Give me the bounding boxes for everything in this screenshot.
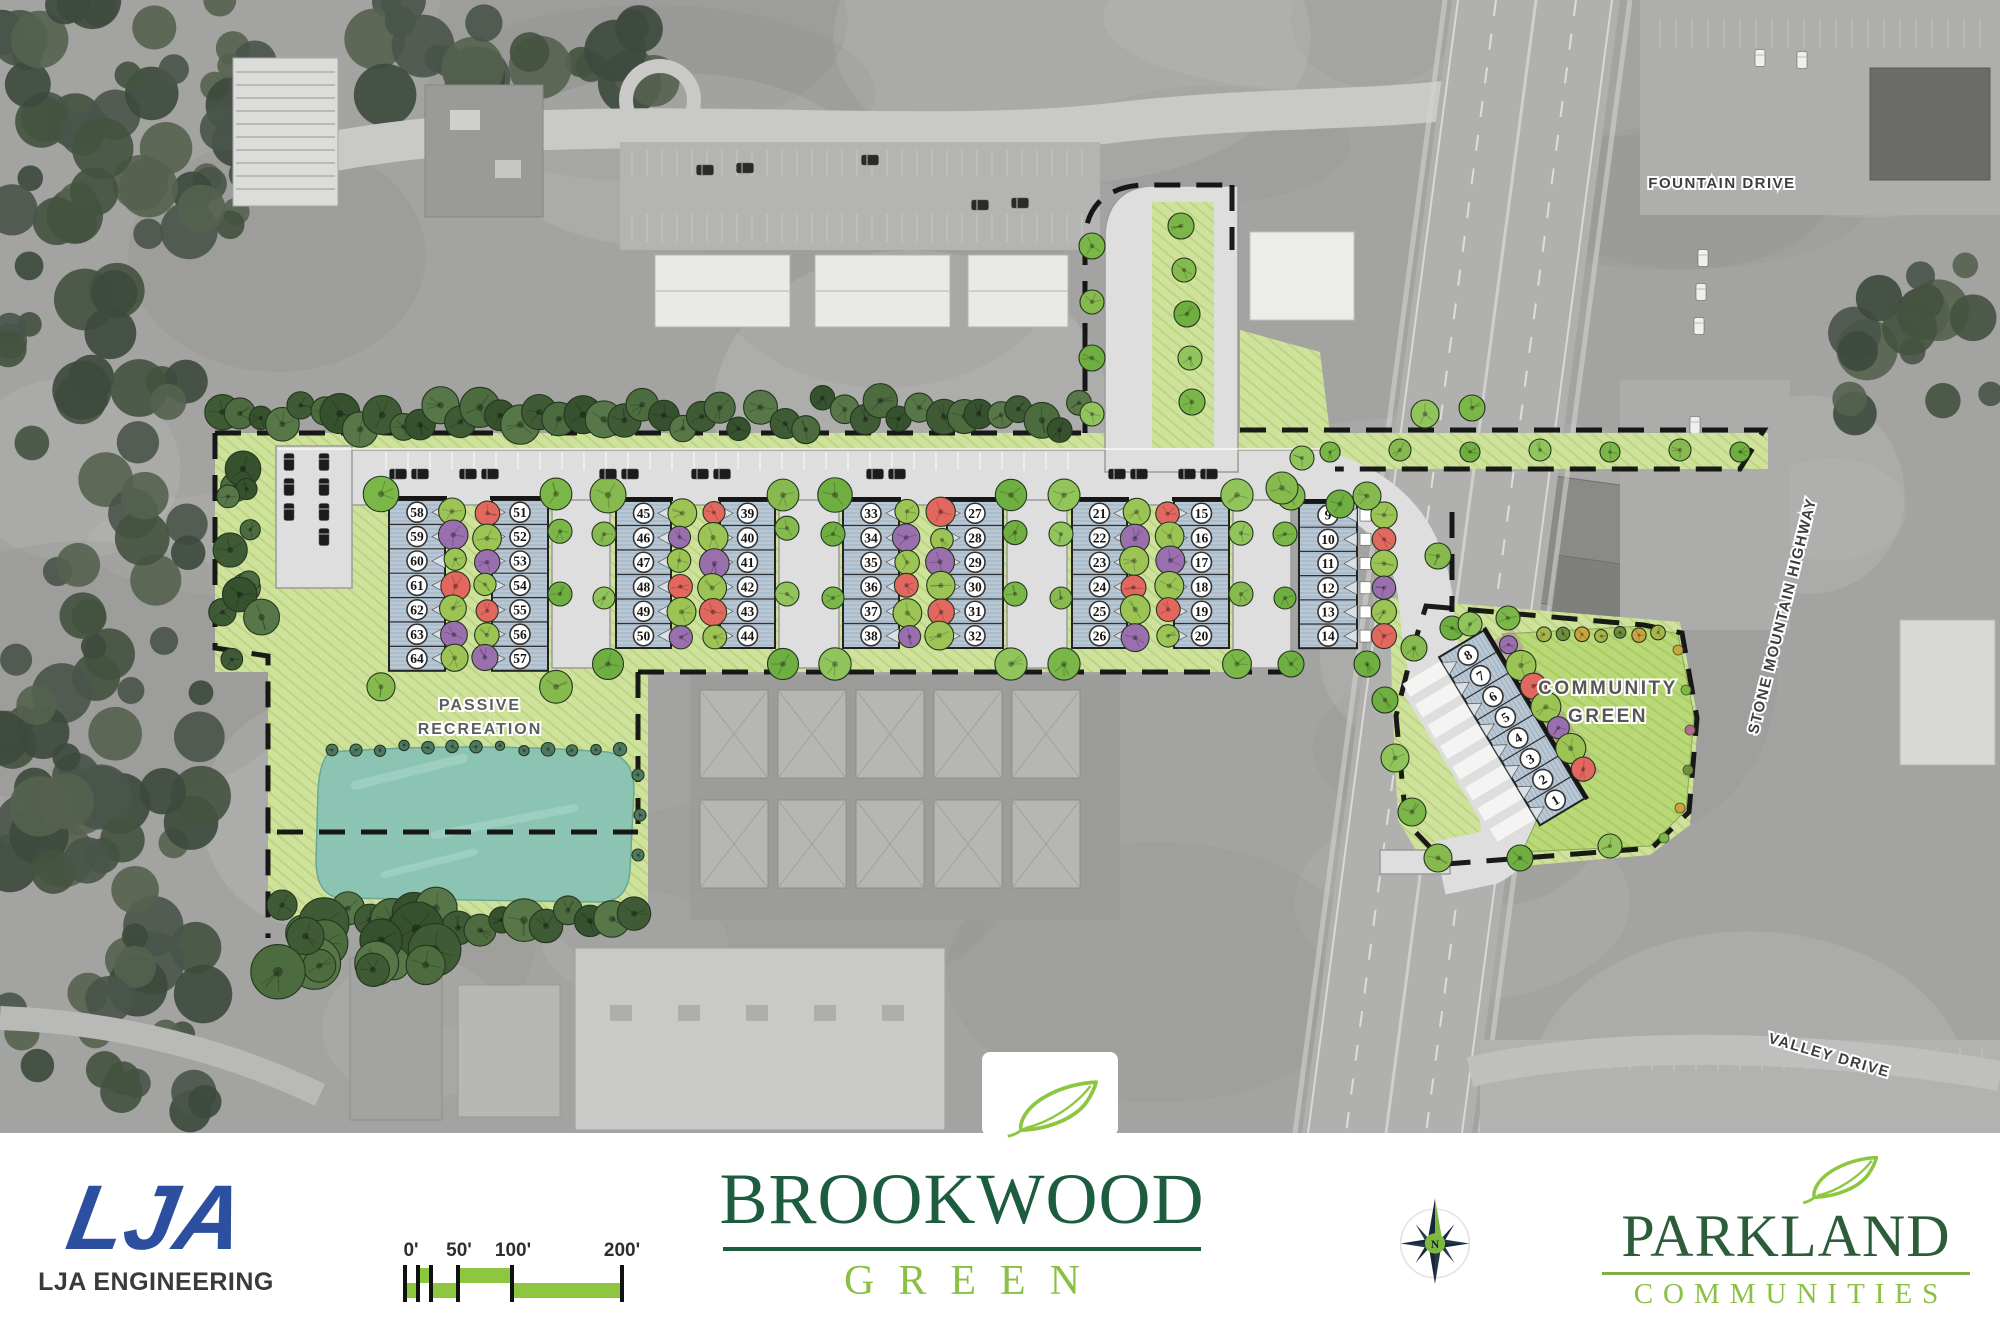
tree-icon	[217, 485, 240, 508]
svg-text:21: 21	[1093, 506, 1107, 521]
lot-44: 44	[738, 626, 758, 646]
parkland-divider	[1602, 1272, 1970, 1275]
tree-icon	[704, 392, 735, 423]
tree-icon	[1048, 479, 1080, 511]
tree-icon	[326, 744, 338, 756]
tree-icon	[1600, 442, 1620, 462]
tree-icon	[476, 600, 498, 622]
car-icon	[284, 454, 294, 471]
community-green-label-line2: GREEN	[1568, 706, 1648, 727]
lot-32: 32	[965, 626, 985, 646]
car-icon	[1797, 52, 1807, 69]
tree-icon	[667, 597, 696, 626]
svg-text:63: 63	[410, 627, 424, 642]
tree-icon	[593, 587, 615, 609]
lja-engineering-logo: LJA LJA ENGINEERING	[36, 1172, 276, 1297]
car-icon	[737, 163, 754, 173]
tree-icon	[1389, 439, 1411, 461]
car-icon	[319, 479, 329, 496]
tree-icon	[1048, 648, 1080, 680]
lot-58: 58	[407, 502, 427, 522]
fountain-drive-label: FOUNTAIN DRIVE	[1648, 175, 1795, 192]
svg-text:24: 24	[1093, 579, 1107, 594]
tree-icon	[1003, 582, 1027, 606]
tree-icon	[894, 573, 918, 597]
tree-icon	[1168, 213, 1194, 239]
car-icon	[482, 469, 499, 479]
tree-icon	[1575, 627, 1590, 642]
tree-icon	[727, 417, 750, 440]
scale-bar: 0' 50' 100' 200'	[405, 1240, 655, 1302]
tree-icon	[821, 522, 845, 546]
lot-59: 59	[407, 527, 427, 547]
tree-icon	[1632, 628, 1646, 642]
lot-60: 60	[407, 551, 427, 571]
scale-bar-graphic	[405, 1268, 655, 1302]
tree-icon	[1278, 651, 1304, 677]
tree-icon	[1003, 521, 1027, 545]
car-icon	[412, 469, 429, 479]
tree-icon	[1156, 598, 1180, 622]
tree-icon	[1354, 651, 1380, 677]
tree-icon	[1229, 582, 1253, 606]
car-icon	[889, 469, 906, 479]
tree-icon	[767, 648, 798, 679]
tree-icon	[1595, 630, 1608, 643]
tree-icon	[1651, 625, 1666, 640]
car-icon	[1755, 50, 1765, 67]
parkland-subtitle: COMMUNITIES	[1586, 1280, 1986, 1309]
svg-text:30: 30	[968, 579, 982, 594]
svg-text:15: 15	[1195, 506, 1209, 521]
passive-recreation-label: PASSIVE	[439, 697, 521, 714]
svg-text:17: 17	[1195, 555, 1209, 570]
svg-text:36: 36	[864, 579, 878, 594]
tree-icon	[1290, 446, 1314, 470]
tree-icon	[1401, 635, 1427, 661]
lot-56: 56	[510, 624, 530, 644]
tree-icon	[1223, 650, 1252, 679]
lot-16: 16	[1192, 528, 1212, 548]
tree-icon	[634, 809, 646, 821]
svg-text:56: 56	[513, 627, 527, 642]
svg-text:33: 33	[864, 506, 878, 521]
tree-icon	[1172, 258, 1196, 282]
lot-47: 47	[634, 552, 654, 572]
tree-icon	[1372, 624, 1397, 649]
svg-text:31: 31	[968, 604, 982, 619]
tree-icon	[775, 516, 799, 540]
tree-icon	[406, 945, 445, 984]
parkland-title: PARKLAND	[1586, 1206, 1986, 1266]
tree-icon	[613, 743, 626, 756]
svg-text:61: 61	[410, 578, 424, 593]
tree-icon	[1320, 442, 1340, 462]
svg-text:55: 55	[513, 602, 527, 617]
car-icon	[692, 469, 709, 479]
tree-icon	[1424, 844, 1452, 872]
lot-17: 17	[1192, 552, 1212, 572]
tree-icon	[1411, 400, 1439, 428]
tree-icon	[925, 621, 954, 650]
tree-icon	[1079, 345, 1105, 371]
tree-icon	[668, 575, 692, 599]
svg-text:18: 18	[1195, 579, 1209, 594]
leaf-icon	[1004, 1058, 1098, 1158]
tree-icon	[632, 849, 644, 861]
tree-icon	[1120, 546, 1149, 575]
lot-14: 14	[1318, 626, 1338, 646]
svg-text:35: 35	[864, 555, 878, 570]
lot-51: 51	[510, 502, 530, 522]
lot-18: 18	[1192, 577, 1212, 597]
tree-icon	[1537, 627, 1552, 642]
lot-41: 41	[738, 552, 758, 572]
car-icon	[1690, 417, 1700, 434]
svg-text:34: 34	[864, 530, 878, 545]
tree-icon	[1507, 845, 1533, 871]
svg-text:38: 38	[864, 628, 878, 643]
tree-icon	[540, 478, 572, 510]
tree-icon	[895, 499, 919, 523]
compass-rose-icon: N	[1396, 1178, 1474, 1312]
tree-icon	[287, 392, 314, 419]
tree-icon	[367, 673, 395, 701]
tree-icon	[669, 626, 692, 649]
tree-icon	[1155, 571, 1184, 600]
brookwood-title: BROOKWOOD	[712, 1163, 1212, 1235]
lot-27: 27	[965, 503, 985, 523]
tree-icon	[541, 742, 555, 756]
tree-icon	[1598, 834, 1622, 858]
car-icon	[714, 469, 731, 479]
lot-19: 19	[1192, 601, 1212, 621]
lot-45: 45	[634, 503, 654, 523]
svg-text:64: 64	[410, 651, 424, 666]
tree-icon	[927, 571, 955, 599]
lot-54: 54	[510, 575, 530, 595]
car-icon	[622, 469, 639, 479]
lot-52: 52	[510, 527, 530, 547]
tree-icon	[1614, 626, 1626, 638]
lot-31: 31	[965, 601, 985, 621]
tree-icon	[1459, 395, 1485, 421]
lot-39: 39	[738, 503, 758, 523]
svg-text:40: 40	[741, 530, 755, 545]
svg-text:23: 23	[1093, 555, 1107, 570]
tree-icon	[1398, 798, 1426, 826]
tree-icon	[566, 745, 577, 756]
tree-icon	[1458, 612, 1482, 636]
svg-text:60: 60	[410, 554, 424, 569]
tree-icon	[548, 519, 572, 543]
lot-53: 53	[510, 551, 530, 571]
svg-text:53: 53	[513, 554, 527, 569]
scale-bar-labels: 0' 50' 100' 200'	[405, 1240, 655, 1262]
car-icon	[460, 469, 477, 479]
car-icon	[1696, 284, 1706, 301]
svg-text:39: 39	[741, 506, 755, 521]
svg-text:37: 37	[864, 604, 878, 619]
svg-text:51: 51	[513, 505, 527, 520]
car-icon	[1698, 250, 1708, 267]
lja-company-name: LJA ENGINEERING	[36, 1268, 276, 1297]
townhome-building: 454647484950	[614, 497, 673, 648]
car-icon	[390, 469, 407, 479]
svg-text:26: 26	[1093, 628, 1107, 643]
lot-12: 12	[1318, 578, 1338, 598]
car-icon	[1131, 469, 1148, 479]
svg-text:48: 48	[637, 579, 651, 594]
tree-icon	[668, 526, 690, 548]
car-icon	[862, 155, 879, 165]
tree-icon	[1730, 442, 1750, 462]
scale-label-0: 0'	[403, 1240, 418, 1262]
lot-13: 13	[1318, 602, 1338, 622]
svg-text:32: 32	[968, 628, 982, 643]
lot-35: 35	[861, 552, 881, 572]
tree-icon	[1266, 472, 1298, 504]
tree-icon	[822, 587, 844, 609]
tree-icon	[267, 890, 297, 920]
tree-icon	[667, 549, 690, 572]
svg-text:25: 25	[1093, 604, 1107, 619]
tree-icon	[444, 548, 466, 570]
tree-icon	[1079, 233, 1105, 259]
car-icon	[319, 454, 329, 471]
car-icon	[284, 504, 294, 521]
tree-icon	[767, 479, 799, 511]
car-icon	[972, 200, 989, 210]
car-icon	[1201, 469, 1218, 479]
lot-34: 34	[861, 528, 881, 548]
brookwood-green-logo: BROOKWOOD GREEN	[712, 1075, 1212, 1302]
svg-text:14: 14	[1321, 629, 1335, 644]
svg-text:19: 19	[1195, 604, 1209, 619]
lot-48: 48	[634, 577, 654, 597]
tree-icon	[1080, 290, 1104, 314]
svg-text:13: 13	[1321, 605, 1335, 620]
lot-61: 61	[407, 575, 427, 595]
community-green-label: COMMUNITY	[1538, 678, 1678, 699]
car-icon	[1012, 198, 1029, 208]
svg-text:46: 46	[637, 530, 651, 545]
tree-icon	[792, 416, 820, 444]
tree-icon	[221, 648, 243, 670]
lot-15: 15	[1192, 503, 1212, 523]
tree-icon	[818, 478, 852, 512]
tree-icon	[926, 497, 955, 526]
tree-icon	[899, 626, 921, 648]
tree-icon	[1371, 550, 1398, 577]
tree-icon	[1372, 576, 1395, 599]
svg-text:16: 16	[1195, 530, 1209, 545]
lot-10: 10	[1318, 529, 1338, 549]
car-icon	[867, 469, 884, 479]
svg-text:57: 57	[513, 651, 527, 666]
tree-icon	[1425, 543, 1451, 569]
svg-text:45: 45	[637, 506, 651, 521]
compass-north-label: N	[1431, 1238, 1440, 1251]
svg-text:44: 44	[741, 628, 755, 643]
lot-23: 23	[1090, 552, 1110, 572]
svg-text:42: 42	[741, 579, 755, 594]
tree-icon	[548, 582, 572, 606]
tree-icon	[699, 599, 726, 626]
tree-icon	[1050, 587, 1072, 609]
tree-icon	[350, 744, 362, 756]
tree-icon	[1353, 482, 1381, 510]
tree-icon	[1371, 599, 1396, 624]
svg-text:47: 47	[637, 555, 651, 570]
lot-21: 21	[1090, 503, 1110, 523]
lot-57: 57	[510, 649, 530, 669]
svg-text:20: 20	[1195, 628, 1209, 643]
tree-icon	[1047, 418, 1072, 443]
tree-icon	[1221, 479, 1253, 511]
tree-icon	[374, 745, 385, 756]
lot-25: 25	[1090, 601, 1110, 621]
svg-text:50: 50	[637, 628, 651, 643]
lot-49: 49	[634, 601, 654, 621]
townhome-building: 333435363738	[841, 497, 901, 648]
tree-icon	[1080, 402, 1104, 426]
brookwood-subtitle: GREEN	[712, 1260, 1212, 1302]
scale-label-200: 200'	[604, 1240, 640, 1262]
tree-icon	[895, 550, 920, 575]
townhome-building: 212223242526	[1070, 497, 1129, 648]
tree-icon	[995, 479, 1026, 510]
brookwood-divider	[723, 1247, 1201, 1251]
tree-icon	[698, 523, 728, 553]
car-icon	[1109, 469, 1126, 479]
car-icon	[697, 165, 714, 175]
tree-icon	[441, 644, 468, 671]
tree-icon	[893, 599, 922, 628]
passive-recreation-label-line2: RECREATION	[418, 721, 543, 738]
tree-icon	[356, 953, 389, 986]
tree-icon	[617, 897, 650, 930]
tree-icon	[1669, 439, 1691, 461]
tree-icon	[668, 499, 697, 528]
lot-42: 42	[738, 577, 758, 597]
tree-icon	[1372, 528, 1396, 552]
lot-22: 22	[1090, 528, 1110, 548]
tree-icon	[472, 644, 498, 670]
tree-icon	[1229, 521, 1253, 545]
lot-11: 11	[1318, 554, 1338, 574]
lot-20: 20	[1192, 626, 1212, 646]
tree-icon	[1274, 587, 1296, 609]
lot-33: 33	[861, 503, 881, 523]
lot-28: 28	[965, 528, 985, 548]
tree-icon	[703, 625, 727, 649]
svg-text:54: 54	[513, 578, 527, 593]
tree-icon	[1529, 439, 1551, 461]
svg-text:27: 27	[968, 506, 982, 521]
svg-text:28: 28	[968, 530, 982, 545]
car-icon	[600, 469, 617, 479]
scale-label-50: 50'	[446, 1240, 472, 1262]
scale-label-100: 100'	[495, 1240, 531, 1262]
tree-icon	[475, 501, 500, 526]
svg-text:49: 49	[637, 604, 651, 619]
tree-icon	[1120, 595, 1150, 625]
car-icon	[1179, 469, 1196, 479]
car-icon	[284, 479, 294, 496]
tree-icon	[1174, 301, 1200, 327]
tree-icon	[1496, 606, 1520, 630]
svg-text:12: 12	[1321, 580, 1335, 595]
svg-text:58: 58	[410, 505, 424, 520]
lot-40: 40	[738, 528, 758, 548]
tree-icon	[1273, 522, 1297, 546]
svg-text:22: 22	[1093, 530, 1107, 545]
tree-icon	[446, 740, 458, 752]
svg-text:41: 41	[741, 555, 755, 570]
lot-38: 38	[861, 626, 881, 646]
tree-icon	[475, 550, 500, 575]
tree-icon	[213, 533, 247, 567]
tree-icon	[703, 502, 725, 524]
lot-36: 36	[861, 577, 881, 597]
tree-icon	[440, 595, 467, 622]
tree-icon	[540, 670, 573, 703]
tree-icon	[1460, 442, 1480, 462]
townhome-building: 58596061626364	[387, 496, 447, 671]
tree-icon	[1049, 522, 1073, 546]
svg-text:59: 59	[410, 529, 424, 544]
tree-icon	[422, 741, 434, 753]
tree-icon	[819, 648, 851, 680]
lot-30: 30	[965, 577, 985, 597]
tree-icon	[591, 744, 601, 754]
lot-26: 26	[1090, 626, 1110, 646]
tree-icon	[399, 740, 409, 750]
lot-63: 63	[407, 624, 427, 644]
tree-icon	[592, 522, 616, 546]
car-icon	[1694, 318, 1704, 335]
lot-62: 62	[407, 600, 427, 620]
lot-64: 64	[407, 649, 427, 669]
svg-text:11: 11	[1322, 556, 1335, 571]
tree-icon	[593, 649, 624, 680]
car-icon	[319, 529, 329, 546]
tree-icon	[775, 582, 799, 606]
svg-text:43: 43	[741, 604, 755, 619]
townhome-building: 151617181920	[1172, 497, 1231, 648]
svg-text:10: 10	[1321, 532, 1335, 547]
tree-icon	[1157, 625, 1179, 647]
tree-icon	[438, 520, 467, 549]
lot-50: 50	[634, 626, 654, 646]
svg-text:62: 62	[410, 602, 424, 617]
tree-icon	[1178, 346, 1202, 370]
lot-24: 24	[1090, 577, 1110, 597]
tree-icon	[590, 477, 626, 513]
tree-icon	[1556, 627, 1569, 640]
site-plan-canvas: 5859606162636451525354555657454647484950…	[0, 0, 2000, 1333]
tree-icon	[1381, 744, 1409, 772]
tree-icon	[1123, 498, 1150, 525]
tree-icon	[995, 648, 1027, 680]
tree-icon	[1156, 546, 1185, 575]
car-icon	[319, 504, 329, 521]
svg-text:29: 29	[968, 555, 982, 570]
tree-icon	[473, 524, 502, 553]
svg-text:52: 52	[513, 529, 527, 544]
lja-monogram: LJA	[28, 1172, 284, 1264]
